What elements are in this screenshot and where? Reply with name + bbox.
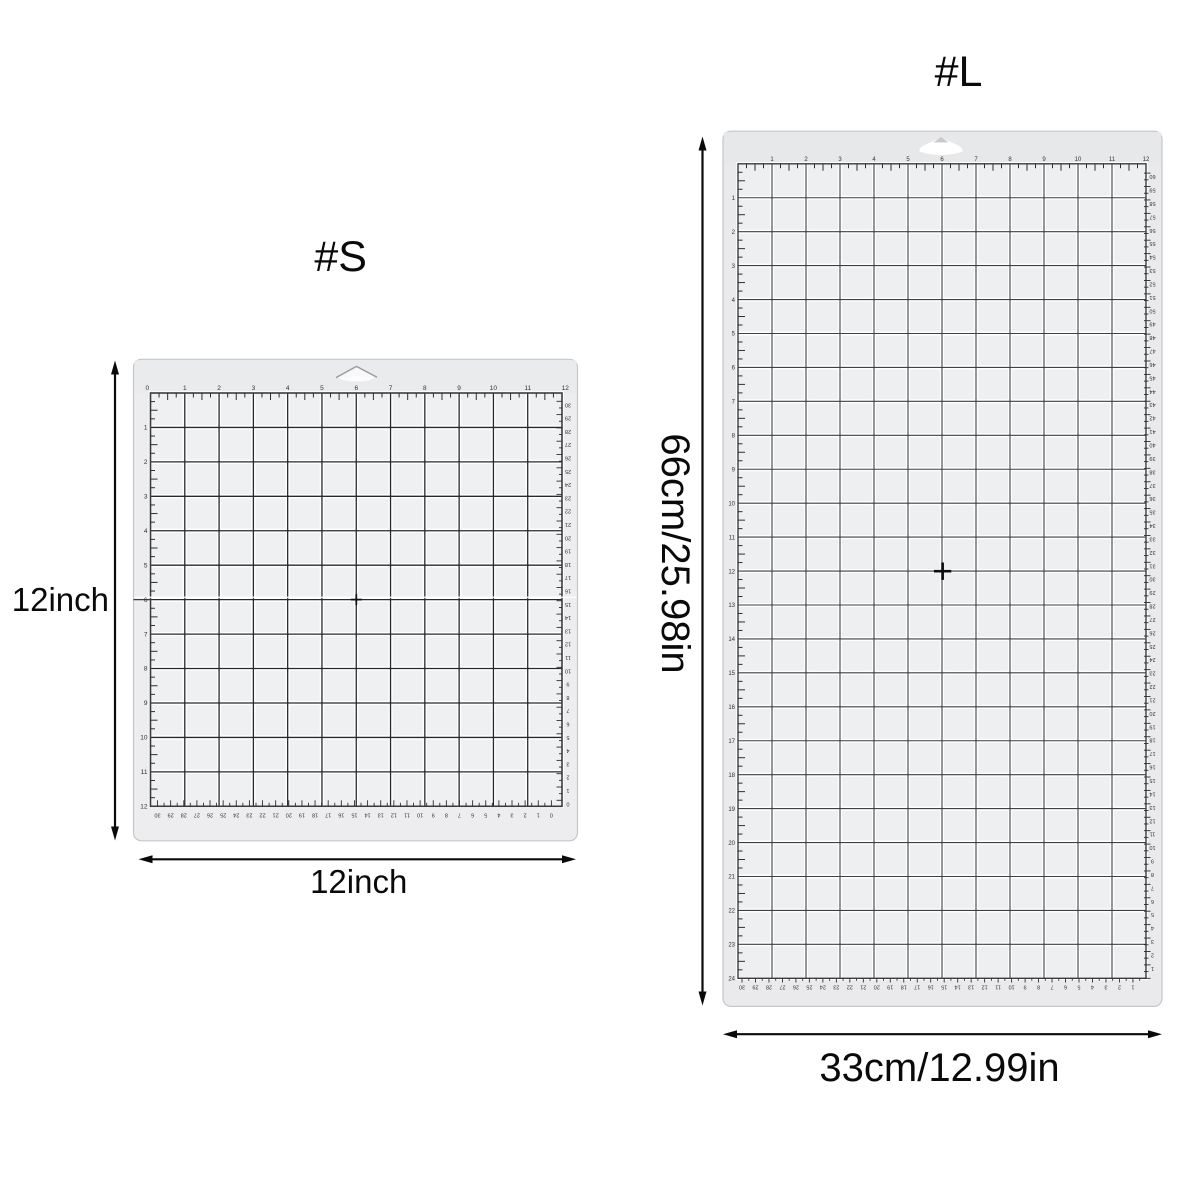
svg-text:1: 1 bbox=[1131, 983, 1134, 989]
svg-text:30: 30 bbox=[154, 811, 160, 817]
svg-text:26: 26 bbox=[1149, 629, 1155, 635]
svg-text:38: 38 bbox=[1149, 468, 1155, 474]
svg-text:45: 45 bbox=[1149, 374, 1155, 380]
svg-text:21: 21 bbox=[1149, 696, 1155, 702]
svg-text:40: 40 bbox=[1149, 442, 1155, 448]
svg-text:8: 8 bbox=[1151, 871, 1154, 877]
svg-text:28: 28 bbox=[181, 811, 187, 817]
svg-text:7: 7 bbox=[566, 707, 569, 713]
svg-text:21: 21 bbox=[728, 875, 735, 881]
svg-text:#L: #L bbox=[935, 48, 983, 96]
svg-text:29: 29 bbox=[565, 415, 571, 421]
svg-text:9: 9 bbox=[1024, 983, 1027, 989]
svg-text:2: 2 bbox=[144, 459, 148, 466]
svg-text:16: 16 bbox=[338, 811, 344, 817]
svg-text:59: 59 bbox=[1149, 187, 1155, 193]
svg-text:27: 27 bbox=[194, 811, 200, 817]
svg-text:12: 12 bbox=[728, 569, 735, 575]
svg-text:15: 15 bbox=[351, 811, 357, 817]
svg-text:48: 48 bbox=[1149, 334, 1155, 340]
svg-text:5: 5 bbox=[1151, 911, 1154, 917]
svg-text:1: 1 bbox=[144, 425, 148, 432]
svg-text:9: 9 bbox=[144, 700, 148, 707]
svg-text:29: 29 bbox=[752, 983, 758, 989]
svg-text:53: 53 bbox=[1149, 267, 1155, 273]
svg-text:46: 46 bbox=[1149, 361, 1155, 367]
svg-text:18: 18 bbox=[565, 561, 571, 567]
svg-text:22: 22 bbox=[847, 983, 853, 989]
svg-text:41: 41 bbox=[1149, 428, 1155, 434]
svg-text:8: 8 bbox=[445, 811, 448, 817]
svg-text:2: 2 bbox=[1118, 983, 1121, 989]
svg-text:52: 52 bbox=[1149, 280, 1155, 286]
svg-text:13: 13 bbox=[728, 603, 735, 609]
svg-text:66cm/25.98in: 66cm/25.98in bbox=[653, 433, 697, 673]
svg-text:25: 25 bbox=[1149, 643, 1155, 649]
svg-text:9: 9 bbox=[566, 681, 569, 687]
svg-text:50: 50 bbox=[1149, 307, 1155, 313]
svg-text:11: 11 bbox=[1150, 831, 1156, 837]
svg-text:30: 30 bbox=[1149, 576, 1155, 582]
svg-text:10: 10 bbox=[417, 811, 423, 817]
svg-text:11: 11 bbox=[995, 983, 1001, 989]
svg-text:10: 10 bbox=[140, 735, 148, 742]
svg-text:7: 7 bbox=[1051, 983, 1054, 989]
svg-text:15: 15 bbox=[941, 983, 947, 989]
svg-text:56: 56 bbox=[1149, 227, 1155, 233]
svg-text:28: 28 bbox=[565, 428, 571, 434]
svg-text:13: 13 bbox=[1149, 804, 1155, 810]
svg-text:1: 1 bbox=[183, 385, 187, 392]
svg-text:32: 32 bbox=[1149, 549, 1155, 555]
svg-text:55: 55 bbox=[1149, 240, 1155, 246]
svg-text:27: 27 bbox=[1149, 616, 1155, 622]
svg-text:29: 29 bbox=[1149, 589, 1155, 595]
svg-text:6: 6 bbox=[566, 721, 569, 727]
svg-text:24: 24 bbox=[1149, 656, 1155, 662]
svg-text:6: 6 bbox=[144, 597, 148, 604]
svg-text:24: 24 bbox=[233, 811, 239, 817]
svg-text:33: 33 bbox=[1149, 535, 1155, 541]
svg-text:11: 11 bbox=[565, 654, 571, 660]
svg-text:26: 26 bbox=[207, 811, 213, 817]
svg-text:2: 2 bbox=[1151, 951, 1154, 957]
svg-text:28: 28 bbox=[1149, 603, 1155, 609]
svg-text:19: 19 bbox=[565, 548, 571, 554]
svg-text:21: 21 bbox=[565, 521, 571, 527]
svg-text:5: 5 bbox=[144, 562, 148, 569]
svg-text:16: 16 bbox=[565, 588, 571, 594]
svg-text:24: 24 bbox=[820, 983, 826, 989]
svg-text:5: 5 bbox=[484, 811, 487, 817]
svg-text:39: 39 bbox=[1149, 455, 1155, 461]
svg-text:0: 0 bbox=[566, 800, 569, 806]
svg-text:3: 3 bbox=[1104, 983, 1107, 989]
svg-text:12: 12 bbox=[1143, 157, 1150, 163]
svg-text:9: 9 bbox=[432, 811, 435, 817]
svg-text:18: 18 bbox=[901, 983, 907, 989]
svg-text:20: 20 bbox=[1149, 710, 1155, 716]
svg-text:19: 19 bbox=[1149, 723, 1155, 729]
svg-text:28: 28 bbox=[766, 983, 772, 989]
svg-text:25: 25 bbox=[806, 983, 812, 989]
svg-text:21: 21 bbox=[860, 983, 866, 989]
svg-text:12: 12 bbox=[391, 811, 397, 817]
svg-text:17: 17 bbox=[565, 574, 571, 580]
svg-text:9: 9 bbox=[1151, 858, 1154, 864]
svg-text:30: 30 bbox=[739, 983, 745, 989]
svg-text:26: 26 bbox=[565, 455, 571, 461]
svg-text:10: 10 bbox=[565, 667, 571, 673]
svg-text:7: 7 bbox=[1151, 884, 1154, 890]
svg-text:14: 14 bbox=[955, 983, 961, 989]
svg-text:4: 4 bbox=[1091, 983, 1094, 989]
svg-text:13: 13 bbox=[968, 983, 974, 989]
svg-text:6: 6 bbox=[1064, 983, 1067, 989]
svg-text:20: 20 bbox=[286, 811, 292, 817]
svg-text:19: 19 bbox=[299, 811, 305, 817]
svg-text:8: 8 bbox=[1037, 983, 1040, 989]
svg-text:4: 4 bbox=[1151, 925, 1154, 931]
svg-text:1: 1 bbox=[537, 811, 540, 817]
svg-text:18: 18 bbox=[728, 773, 735, 779]
svg-text:17: 17 bbox=[1149, 750, 1155, 756]
svg-text:20: 20 bbox=[874, 983, 880, 989]
svg-text:7: 7 bbox=[458, 811, 461, 817]
svg-text:3: 3 bbox=[510, 811, 513, 817]
svg-text:22: 22 bbox=[1149, 683, 1155, 689]
svg-text:12: 12 bbox=[140, 804, 148, 811]
svg-text:2: 2 bbox=[524, 811, 527, 817]
svg-text:20: 20 bbox=[728, 841, 735, 847]
svg-text:13: 13 bbox=[565, 627, 571, 633]
svg-text:22: 22 bbox=[565, 508, 571, 514]
svg-text:18: 18 bbox=[312, 811, 318, 817]
svg-text:16: 16 bbox=[728, 705, 735, 711]
svg-text:#S: #S bbox=[314, 233, 367, 281]
svg-text:5: 5 bbox=[566, 734, 569, 740]
svg-text:30: 30 bbox=[565, 401, 571, 407]
svg-text:49: 49 bbox=[1149, 321, 1155, 327]
svg-text:43: 43 bbox=[1149, 401, 1155, 407]
svg-text:23: 23 bbox=[728, 943, 735, 949]
svg-text:34: 34 bbox=[1149, 522, 1155, 528]
svg-text:17: 17 bbox=[325, 811, 331, 817]
svg-text:47: 47 bbox=[1149, 348, 1155, 354]
svg-text:23: 23 bbox=[565, 494, 571, 500]
svg-text:10: 10 bbox=[1009, 983, 1015, 989]
svg-text:11: 11 bbox=[524, 385, 531, 392]
svg-text:60: 60 bbox=[1149, 173, 1155, 179]
svg-text:25: 25 bbox=[220, 811, 226, 817]
svg-text:1: 1 bbox=[1151, 965, 1154, 971]
svg-text:11: 11 bbox=[1109, 157, 1116, 163]
svg-text:21: 21 bbox=[273, 811, 279, 817]
svg-text:2: 2 bbox=[217, 385, 221, 392]
svg-text:18: 18 bbox=[1149, 737, 1155, 743]
svg-text:10: 10 bbox=[1149, 844, 1155, 850]
svg-text:17: 17 bbox=[914, 983, 920, 989]
svg-text:12: 12 bbox=[565, 641, 571, 647]
svg-text:15: 15 bbox=[565, 601, 571, 607]
svg-text:36: 36 bbox=[1149, 495, 1155, 501]
svg-text:16: 16 bbox=[928, 983, 934, 989]
svg-text:3: 3 bbox=[1151, 938, 1154, 944]
svg-text:3: 3 bbox=[144, 494, 148, 501]
svg-text:29: 29 bbox=[168, 811, 174, 817]
svg-text:37: 37 bbox=[1149, 482, 1155, 488]
svg-text:25: 25 bbox=[565, 468, 571, 474]
svg-text:6: 6 bbox=[1151, 898, 1154, 904]
svg-text:22: 22 bbox=[259, 811, 265, 817]
svg-text:12inch: 12inch bbox=[310, 863, 407, 900]
svg-text:24: 24 bbox=[565, 481, 571, 487]
svg-text:3: 3 bbox=[252, 385, 256, 392]
svg-text:6: 6 bbox=[354, 385, 358, 392]
svg-text:13: 13 bbox=[378, 811, 384, 817]
svg-text:10: 10 bbox=[1075, 157, 1082, 163]
svg-text:54: 54 bbox=[1149, 254, 1155, 260]
svg-text:14: 14 bbox=[728, 637, 735, 643]
svg-text:24: 24 bbox=[728, 977, 735, 983]
svg-text:31: 31 bbox=[1149, 562, 1155, 568]
svg-text:17: 17 bbox=[728, 739, 735, 745]
svg-text:14: 14 bbox=[1149, 790, 1155, 796]
svg-text:22: 22 bbox=[728, 909, 735, 915]
svg-text:4: 4 bbox=[144, 528, 148, 535]
svg-text:5: 5 bbox=[1077, 983, 1080, 989]
svg-text:11: 11 bbox=[141, 769, 148, 776]
svg-text:8: 8 bbox=[144, 666, 148, 673]
svg-text:11: 11 bbox=[404, 811, 410, 817]
svg-text:16: 16 bbox=[1149, 764, 1155, 770]
svg-text:33cm/12.99in: 33cm/12.99in bbox=[819, 1046, 1059, 1090]
svg-text:5: 5 bbox=[320, 385, 324, 392]
svg-text:51: 51 bbox=[1149, 294, 1155, 300]
svg-text:4: 4 bbox=[497, 811, 500, 817]
svg-text:44: 44 bbox=[1149, 388, 1155, 394]
svg-text:35: 35 bbox=[1149, 509, 1155, 515]
svg-text:19: 19 bbox=[887, 983, 893, 989]
svg-text:26: 26 bbox=[793, 983, 799, 989]
svg-text:27: 27 bbox=[779, 983, 785, 989]
svg-text:4: 4 bbox=[566, 747, 569, 753]
svg-text:6: 6 bbox=[471, 811, 474, 817]
svg-text:3: 3 bbox=[566, 760, 569, 766]
svg-text:15: 15 bbox=[1149, 777, 1155, 783]
svg-text:23: 23 bbox=[833, 983, 839, 989]
svg-text:0: 0 bbox=[550, 811, 553, 817]
svg-text:23: 23 bbox=[246, 811, 252, 817]
svg-text:1: 1 bbox=[566, 787, 569, 793]
svg-text:10: 10 bbox=[490, 385, 498, 392]
svg-text:19: 19 bbox=[728, 807, 735, 813]
svg-text:2: 2 bbox=[566, 774, 569, 780]
svg-text:4: 4 bbox=[286, 385, 290, 392]
svg-text:7: 7 bbox=[144, 631, 148, 638]
svg-text:7: 7 bbox=[389, 385, 393, 392]
svg-text:12: 12 bbox=[1149, 817, 1155, 823]
svg-text:11: 11 bbox=[729, 535, 736, 541]
svg-text:8: 8 bbox=[423, 385, 427, 392]
svg-text:9: 9 bbox=[457, 385, 461, 392]
svg-text:0: 0 bbox=[145, 385, 149, 392]
svg-text:12inch: 12inch bbox=[12, 581, 109, 618]
svg-text:20: 20 bbox=[565, 534, 571, 540]
svg-text:58: 58 bbox=[1149, 200, 1155, 206]
svg-text:8: 8 bbox=[566, 694, 569, 700]
svg-text:14: 14 bbox=[365, 811, 371, 817]
svg-text:57: 57 bbox=[1149, 213, 1155, 219]
svg-text:15: 15 bbox=[728, 671, 735, 677]
svg-text:12: 12 bbox=[982, 983, 988, 989]
svg-text:23: 23 bbox=[1149, 670, 1155, 676]
svg-text:42: 42 bbox=[1149, 415, 1155, 421]
svg-text:27: 27 bbox=[565, 441, 571, 447]
svg-text:14: 14 bbox=[565, 614, 571, 620]
svg-text:12: 12 bbox=[562, 385, 570, 392]
svg-text:10: 10 bbox=[728, 501, 735, 507]
